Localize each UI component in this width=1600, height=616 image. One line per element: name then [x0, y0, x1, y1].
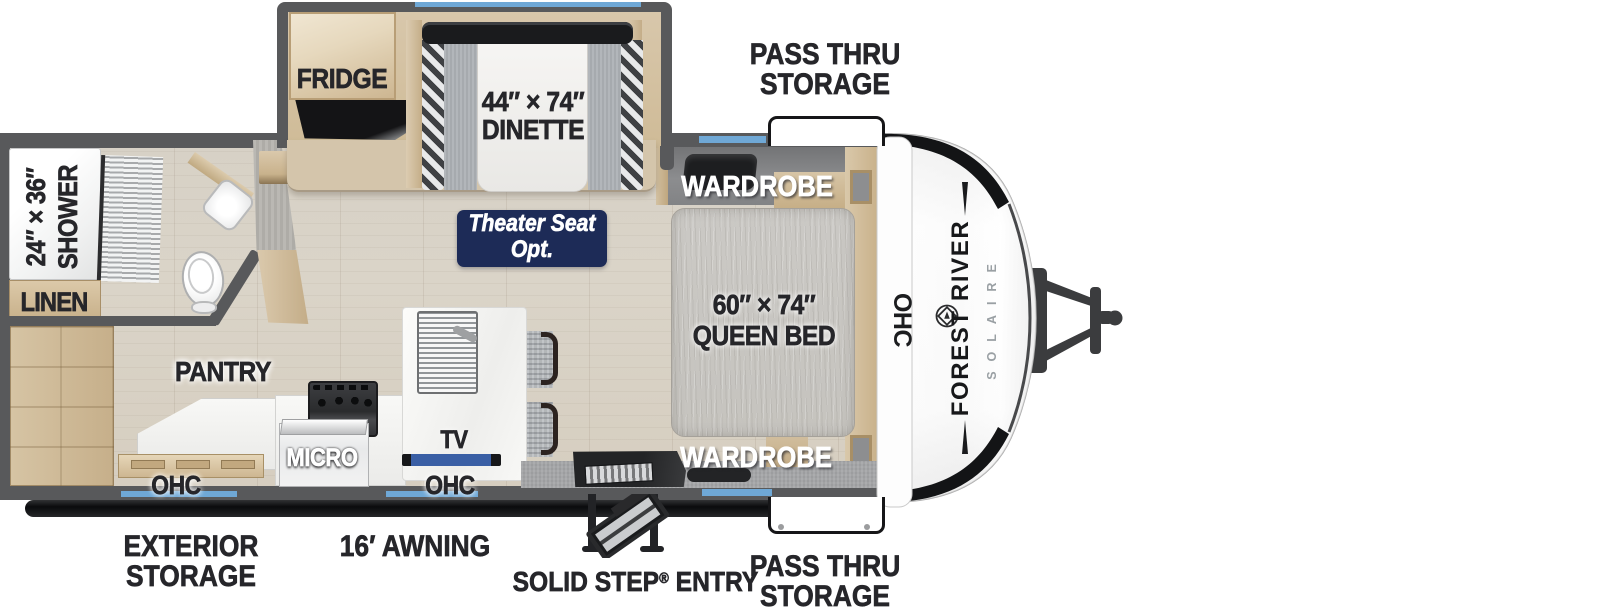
svg-text:SOLAIRE: SOLAIRE [985, 254, 999, 380]
svg-text:OHC: OHC [888, 293, 916, 348]
svg-text:FOREST RIVER: FOREST RIVER [947, 220, 974, 417]
